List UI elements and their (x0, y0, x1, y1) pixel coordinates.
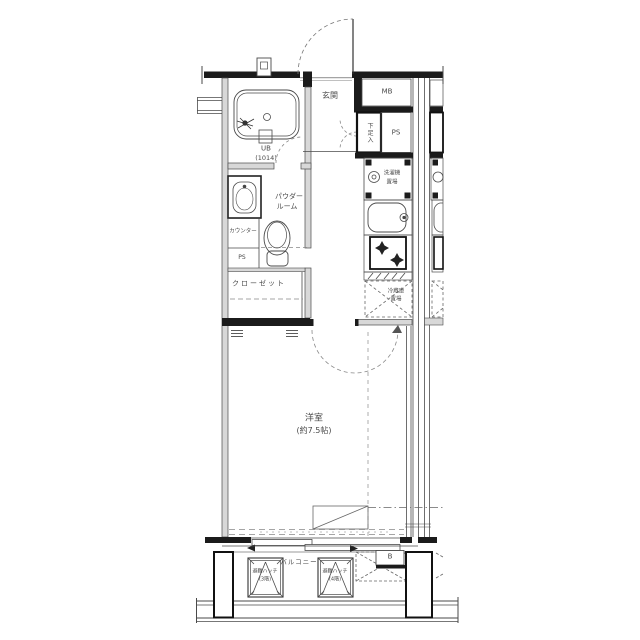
sliding-window-panel (252, 540, 312, 546)
label-shoe-box: 下足入 (366, 123, 372, 144)
curtain-box-lines (229, 530, 404, 535)
counter-edge (364, 272, 412, 280)
entrance-door (298, 19, 353, 74)
floor-plan-drawing (0, 0, 640, 640)
label-main-room-size: (約7.5帖) (297, 427, 332, 435)
meter-box-icon (257, 58, 271, 76)
label-fridge: 冷蔵庫 (388, 289, 405, 295)
pillar (406, 552, 432, 618)
bath-door-swing (276, 137, 302, 163)
toilet (264, 221, 290, 266)
stove (364, 235, 412, 272)
bathtub (234, 90, 299, 139)
left-wall-stubs (197, 98, 222, 114)
label-unit-bath: UB (261, 146, 271, 153)
kitchen-sink (364, 200, 412, 235)
dropped-ceiling (313, 506, 443, 529)
label-fridge: 置場 (390, 297, 401, 303)
label-unit-bath-size: (1014) (255, 155, 277, 162)
floor-plan: 玄関 MB PS 下足入 UB (1014) パウダー ルーム カウンター PS… (0, 0, 640, 640)
bath-faucet-icon (237, 118, 254, 129)
label-b-mark: B (388, 554, 393, 561)
fridge-space (365, 281, 412, 317)
window-wall (205, 537, 437, 552)
label-ps-top: PS (392, 130, 401, 137)
neighbor-unit (425, 80, 444, 578)
room-door-swing (312, 330, 398, 373)
label-balcony: バルコニー (280, 559, 317, 566)
label-hatch-3f: 避難ハッチ (252, 570, 277, 575)
genkan (303, 119, 360, 152)
label-mb: MB (382, 89, 393, 96)
label-genkan: 玄関 (322, 92, 338, 100)
label-washer: 置場 (386, 180, 397, 186)
corridor-top-wall (202, 66, 443, 84)
balcony-b-area (356, 551, 407, 582)
label-powder-room: パウダー (275, 194, 303, 201)
label-counter: カウンター (229, 229, 257, 235)
unit-walls (222, 72, 431, 538)
label-hatch-4f-floor: (4階) (329, 578, 341, 583)
pillar (214, 552, 233, 618)
label-closet: クローゼット (232, 281, 286, 288)
label-ps-left: PS (238, 255, 245, 261)
closet-door-ticks (231, 331, 298, 337)
label-hatch-4f: 避難ハッチ (322, 570, 347, 575)
washbasin (228, 176, 261, 218)
balcony (196, 546, 458, 623)
label-main-room: 洋室 (305, 415, 323, 424)
bath-counter (259, 130, 272, 143)
label-powder-room: ルーム (277, 204, 298, 211)
label-hatch-3f-floor: (3階) (259, 578, 271, 583)
label-washer: 洗濯機 (384, 171, 401, 177)
